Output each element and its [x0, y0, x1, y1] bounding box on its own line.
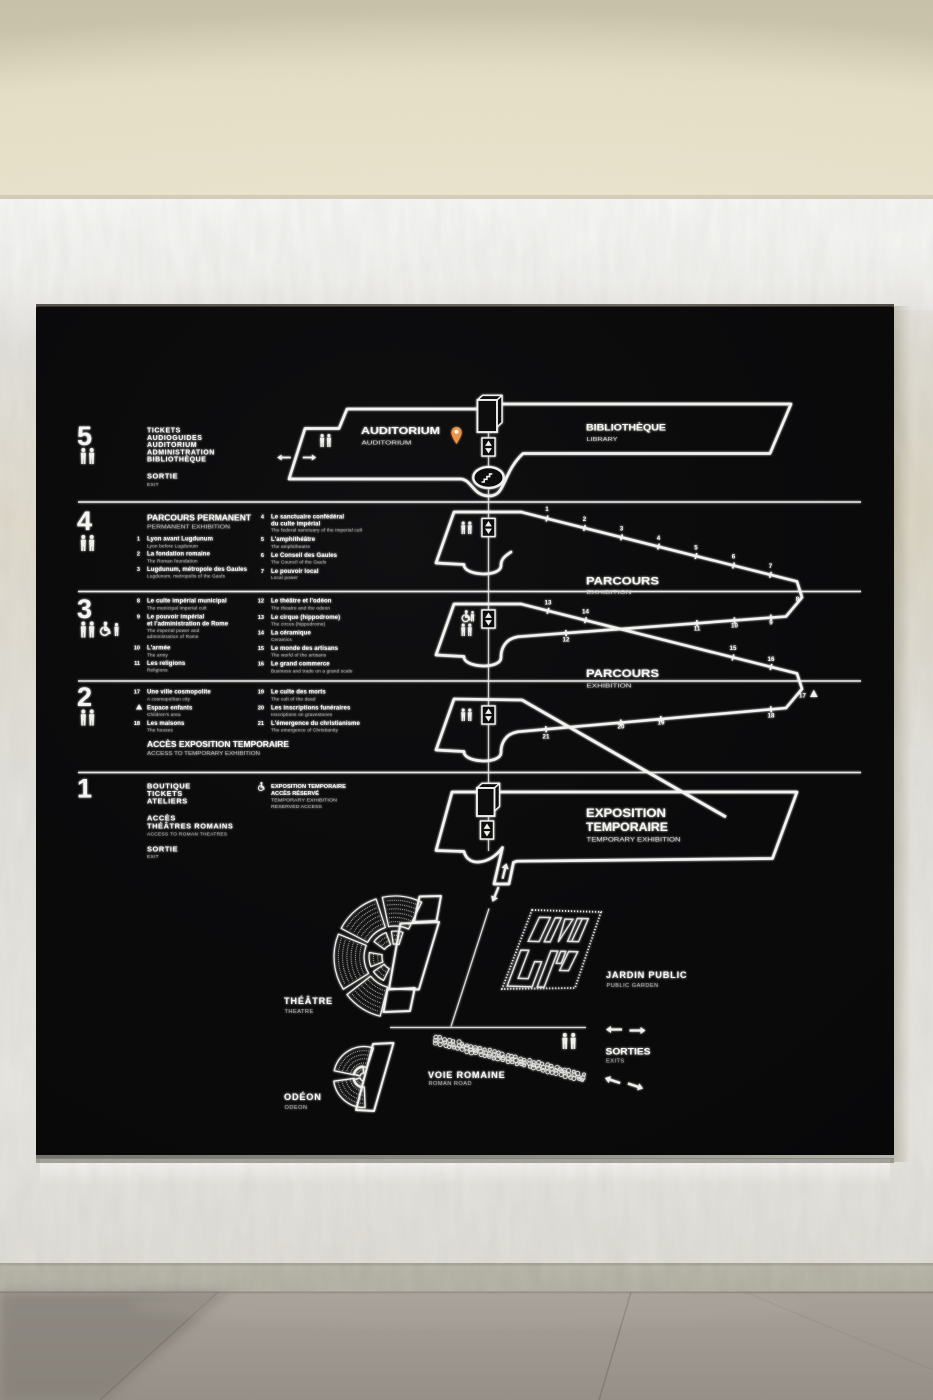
svg-text:BIBLIOTHÈQUE: BIBLIOTHÈQUE [147, 455, 207, 464]
svg-text:The houses: The houses [147, 728, 174, 733]
svg-text:Le sanctuaire confédéral: Le sanctuaire confédéral [271, 515, 344, 521]
svg-text:6: 6 [261, 553, 264, 559]
svg-text:AUDIOGUIDES: AUDIOGUIDES [147, 435, 202, 442]
svg-text:Inscriptions on gravestones: Inscriptions on gravestones [271, 712, 333, 717]
svg-text:TEMPORAIRE: TEMPORAIRE [586, 821, 668, 834]
svg-text:19: 19 [258, 690, 264, 696]
svg-text:ACCÈS RÉSERVÉ: ACCÈS RÉSERVÉ [271, 789, 319, 797]
svg-text:La fondation romaine: La fondation romaine [147, 552, 211, 558]
svg-text:Lyon before Lugdunum: Lyon before Lugdunum [147, 543, 198, 548]
svg-text:13: 13 [545, 600, 552, 607]
svg-text:The circus (hippodrome): The circus (hippodrome) [271, 622, 326, 627]
svg-text:7: 7 [261, 569, 264, 575]
svg-text:The army: The army [147, 652, 169, 657]
svg-text:Les inscriptions funéraires: Les inscriptions funéraires [271, 705, 351, 711]
svg-text:12: 12 [563, 637, 570, 644]
svg-text:JARDIN PUBLIC: JARDIN PUBLIC [606, 970, 687, 980]
svg-text:SORTIE: SORTIE [147, 844, 178, 853]
svg-text:Le théâtre et l'odéon: Le théâtre et l'odéon [271, 599, 332, 605]
svg-text:Le monde des artisans: Le monde des artisans [271, 646, 339, 652]
svg-text:PUBLIC GARDEN: PUBLIC GARDEN [607, 983, 659, 989]
svg-text:TEMPORARY EXHIBITION: TEMPORARY EXHIBITION [587, 837, 681, 844]
svg-text:3: 3 [620, 526, 624, 533]
svg-text:et l'administration de Rome: et l'administration de Rome [147, 622, 229, 628]
svg-text:Les maisons: Les maisons [147, 721, 185, 727]
svg-text:9: 9 [769, 620, 773, 627]
svg-text:BIBLIOTHÈQUE: BIBLIOTHÈQUE [586, 422, 667, 434]
svg-text:The cult of the dead: The cult of the dead [271, 696, 316, 701]
svg-text:TICKETS: TICKETS [147, 428, 181, 435]
svg-text:11: 11 [694, 626, 701, 633]
svg-text:2: 2 [583, 516, 587, 523]
svg-text:The theatre and the odeon: The theatre and the odeon [271, 605, 330, 610]
svg-text:A cosmopolitan city: A cosmopolitan city [147, 696, 191, 701]
svg-text:ACCESS TO ROMAN THEATRES: ACCESS TO ROMAN THEATRES [147, 832, 227, 838]
svg-text:19: 19 [658, 720, 665, 727]
svg-text:1: 1 [545, 506, 549, 513]
svg-text:9: 9 [137, 615, 140, 621]
svg-text:La céramique: La céramique [271, 630, 311, 636]
svg-text:1: 1 [77, 774, 92, 804]
svg-text:SORTIE: SORTIE [147, 472, 178, 481]
svg-text:11: 11 [134, 661, 140, 667]
svg-text:The Roman foundation: The Roman foundation [147, 558, 198, 563]
svg-text:Les religions: Les religions [147, 661, 186, 667]
svg-text:Le grand commerce: Le grand commerce [271, 662, 330, 668]
svg-text:PERMANENT EXHIBITION: PERMANENT EXHIBITION [147, 525, 231, 531]
svg-text:18: 18 [768, 713, 775, 720]
svg-text:PARCOURS: PARCOURS [586, 668, 659, 680]
svg-text:17: 17 [799, 693, 806, 700]
svg-text:8: 8 [137, 599, 140, 605]
svg-text:13: 13 [258, 615, 264, 621]
svg-text:AUDITORIUM: AUDITORIUM [147, 442, 197, 449]
svg-text:THÉÂTRE: THÉÂTRE [284, 995, 333, 1006]
svg-text:21: 21 [258, 721, 264, 727]
svg-text:The federal sanctuary of the i: The federal sanctuary of the imperial cu… [271, 527, 363, 532]
svg-text:EXPOSITION TEMPORAIRE: EXPOSITION TEMPORAIRE [271, 784, 346, 790]
svg-text:2: 2 [77, 682, 92, 712]
svg-text:Le pouvoir impérial: Le pouvoir impérial [147, 615, 204, 621]
svg-text:10: 10 [134, 646, 140, 652]
svg-text:2: 2 [137, 552, 140, 558]
svg-text:Une ville cosmopolite: Une ville cosmopolite [147, 690, 211, 696]
svg-text:8: 8 [796, 596, 800, 603]
svg-text:Ceramics: Ceramics [271, 637, 293, 642]
svg-text:Le cirque (hippodrome): Le cirque (hippodrome) [271, 615, 340, 621]
svg-text:EXIT: EXIT [147, 854, 159, 860]
svg-text:16: 16 [258, 662, 264, 668]
svg-text:3: 3 [137, 567, 140, 573]
svg-text:EXITS: EXITS [606, 1059, 625, 1065]
svg-text:L'armée: L'armée [147, 646, 171, 652]
svg-text:ADMINISTRATION: ADMINISTRATION [147, 449, 215, 456]
svg-text:ACCÈS EXPOSITION TEMPORAIRE: ACCÈS EXPOSITION TEMPORAIRE [147, 739, 289, 749]
svg-text:15: 15 [730, 645, 737, 652]
svg-text:Religions: Religions [147, 668, 168, 673]
svg-text:6: 6 [732, 554, 736, 561]
svg-text:14: 14 [582, 609, 589, 616]
svg-text:The amphitheatre: The amphitheatre [271, 544, 310, 549]
svg-text:EXIT: EXIT [147, 482, 159, 488]
svg-text:VOIE ROMAINE: VOIE ROMAINE [428, 1070, 506, 1080]
svg-text:THÉÂTRES ROMAINS: THÉÂTRES ROMAINS [147, 822, 233, 831]
svg-text:ODEON: ODEON [285, 1105, 308, 1111]
svg-text:10: 10 [731, 623, 738, 630]
svg-text:Espace enfants: Espace enfants [147, 705, 193, 711]
svg-text:ATELIERS: ATELIERS [147, 796, 188, 805]
svg-text:LIBRARY: LIBRARY [587, 437, 619, 443]
svg-text:PARCOURS PERMANENT: PARCOURS PERMANENT [147, 513, 252, 523]
svg-text:The municipal imperial cult: The municipal imperial cult [147, 605, 207, 610]
svg-text:ROMAN ROAD: ROMAN ROAD [429, 1081, 473, 1087]
svg-text:ODÉON: ODÉON [284, 1091, 322, 1102]
svg-text:12: 12 [258, 599, 264, 605]
svg-text:14: 14 [258, 630, 265, 636]
svg-text:Lyon avant Lugdunum: Lyon avant Lugdunum [147, 537, 213, 543]
svg-text:The imperial power and: The imperial power and [147, 628, 200, 633]
svg-text:Lugdunum, metropolis of the Ga: Lugdunum, metropolis of the Gauls [147, 574, 226, 579]
svg-text:Local power: Local power [271, 575, 298, 580]
svg-text:20: 20 [618, 724, 625, 731]
svg-text:1: 1 [137, 537, 140, 543]
svg-text:The emergence of Christianity: The emergence of Christianity [271, 728, 339, 733]
svg-text:EXPOSITION: EXPOSITION [586, 807, 666, 820]
svg-text:EXHIBITION: EXHIBITION [587, 590, 632, 596]
svg-text:4: 4 [657, 535, 661, 542]
svg-text:SORTIES: SORTIES [606, 1047, 651, 1057]
svg-text:7: 7 [769, 563, 773, 570]
svg-text:5: 5 [694, 545, 698, 552]
svg-text:21: 21 [543, 734, 550, 741]
svg-text:The Council of the Gauls: The Council of the Gauls [271, 559, 327, 564]
svg-text:L'amphithéâtre: L'amphithéâtre [271, 537, 316, 543]
svg-text:Lugdunum, métropole des Gaules: Lugdunum, métropole des Gaules [147, 567, 248, 573]
svg-text:AUDITORIUM: AUDITORIUM [361, 426, 440, 437]
svg-text:3: 3 [77, 594, 92, 624]
svg-text:Le culte des morts: Le culte des morts [271, 690, 326, 696]
svg-text:Business and trade on a grand: Business and trade on a grand scale [271, 668, 353, 673]
svg-text:administration of Rome: administration of Rome [147, 634, 199, 639]
svg-text:ACCESS TO TEMPORARY EXHIBITION: ACCESS TO TEMPORARY EXHIBITION [147, 751, 260, 757]
svg-text:PARCOURS: PARCOURS [586, 576, 659, 588]
svg-text:Children's area: Children's area [147, 712, 181, 717]
svg-text:5: 5 [261, 537, 264, 543]
svg-text:20: 20 [258, 705, 264, 711]
svg-text:The world of the artisans: The world of the artisans [271, 653, 327, 658]
svg-text:18: 18 [134, 721, 140, 727]
svg-text:17: 17 [134, 690, 140, 696]
svg-text:5: 5 [77, 421, 92, 451]
svg-text:Le Conseil des Gaules: Le Conseil des Gaules [271, 553, 338, 559]
svg-text:15: 15 [258, 646, 264, 652]
svg-text:Le culte impérial municipal: Le culte impérial municipal [147, 599, 227, 605]
svg-text:EXHIBITION: EXHIBITION [587, 684, 632, 690]
svg-text:AUDITORIUM: AUDITORIUM [362, 441, 413, 447]
svg-text:THEATRE: THEATRE [285, 1009, 314, 1015]
svg-text:RESERVED ACCESS: RESERVED ACCESS [271, 804, 322, 809]
svg-text:TEMPORARY EXHIBITION: TEMPORARY EXHIBITION [271, 798, 337, 803]
svg-text:4: 4 [77, 506, 92, 536]
svg-text:16: 16 [768, 656, 775, 663]
svg-text:L'émergence du christianisme: L'émergence du christianisme [271, 721, 360, 727]
